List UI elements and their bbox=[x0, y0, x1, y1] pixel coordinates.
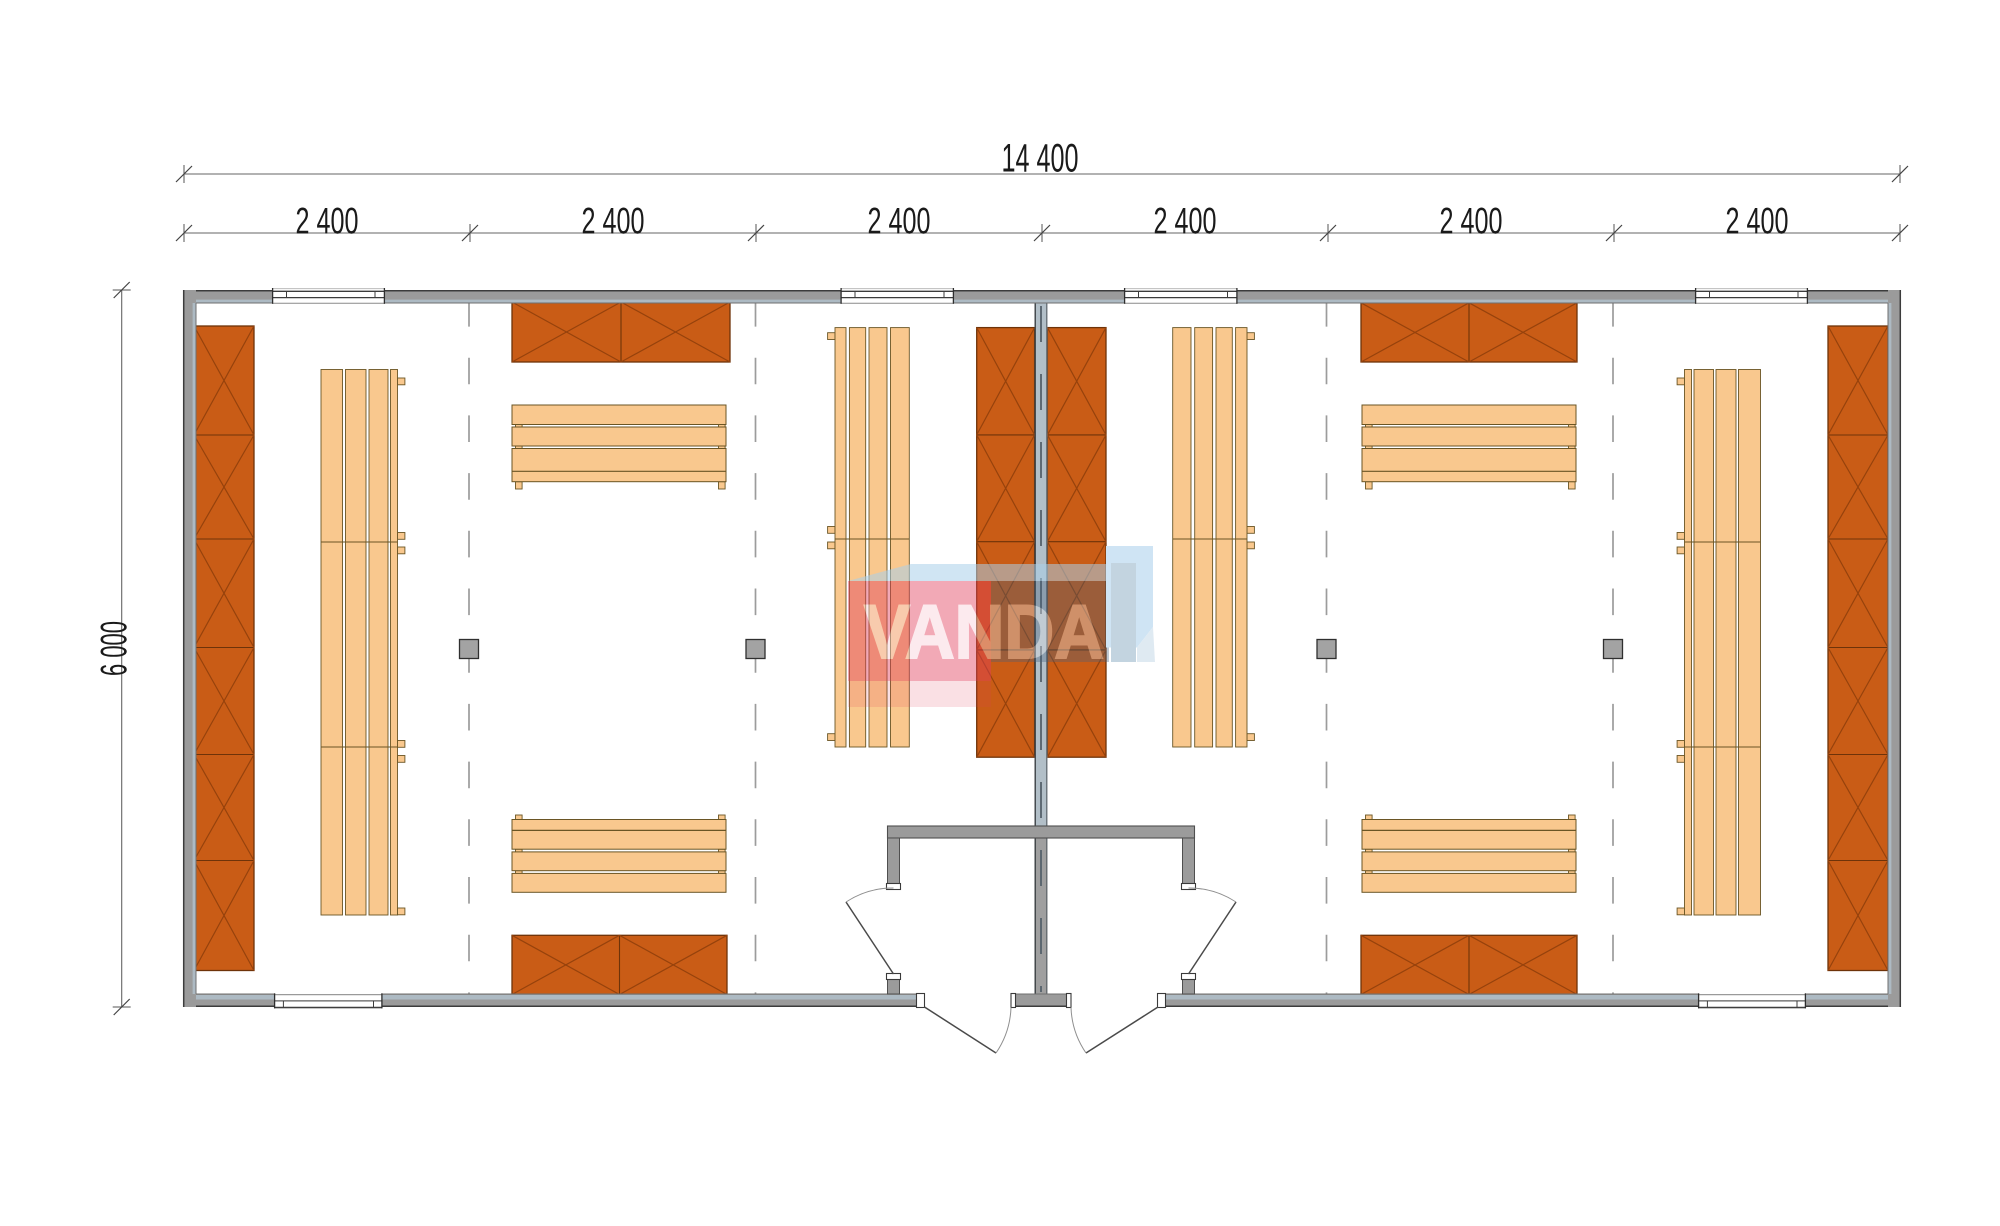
svg-text:14 400: 14 400 bbox=[1002, 137, 1079, 181]
svg-text:6 000: 6 000 bbox=[94, 621, 135, 676]
svg-text:2 400: 2 400 bbox=[1440, 201, 1503, 242]
svg-text:2 400: 2 400 bbox=[1154, 201, 1217, 242]
svg-text:2 400: 2 400 bbox=[582, 201, 645, 242]
svg-text:VANDA: VANDA bbox=[864, 590, 1104, 675]
svg-text:2 400: 2 400 bbox=[868, 201, 931, 242]
svg-text:2 400: 2 400 bbox=[1726, 201, 1789, 242]
svg-text:2 400: 2 400 bbox=[296, 201, 359, 242]
